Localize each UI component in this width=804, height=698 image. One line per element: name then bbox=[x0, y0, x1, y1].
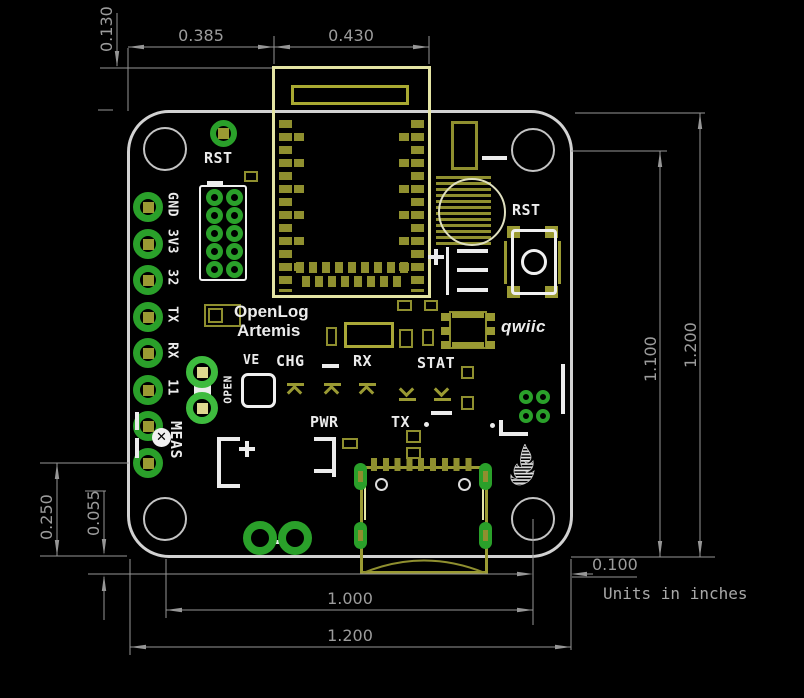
dim-board-height: 1.200 bbox=[681, 322, 700, 368]
dim-card-overhang: 0.055 bbox=[84, 490, 103, 536]
dimension-layer: 0.130 0.385 0.430 0.250 0.055 1.000 1.20… bbox=[0, 0, 804, 698]
pcb-dimensional-drawing: RST GND 3V3 32 TX RX 11 ✕ MEAS OPEN VE O… bbox=[0, 0, 804, 698]
dim-module-width: 0.430 bbox=[328, 26, 374, 45]
dim-hole-to-bottom: 1.100 bbox=[641, 336, 660, 382]
dim-hole-to-edge: 0.100 bbox=[592, 555, 638, 574]
dim-hole-spacing: 1.000 bbox=[327, 589, 373, 608]
dim-edge-to-module: 0.385 bbox=[178, 26, 224, 45]
dim-board-width: 1.200 bbox=[327, 626, 373, 645]
units-note: Units in inches bbox=[603, 584, 748, 603]
dim-module-top-offset: 0.130 bbox=[97, 6, 116, 52]
dim-pin-row-to-bottom: 0.250 bbox=[37, 494, 56, 540]
